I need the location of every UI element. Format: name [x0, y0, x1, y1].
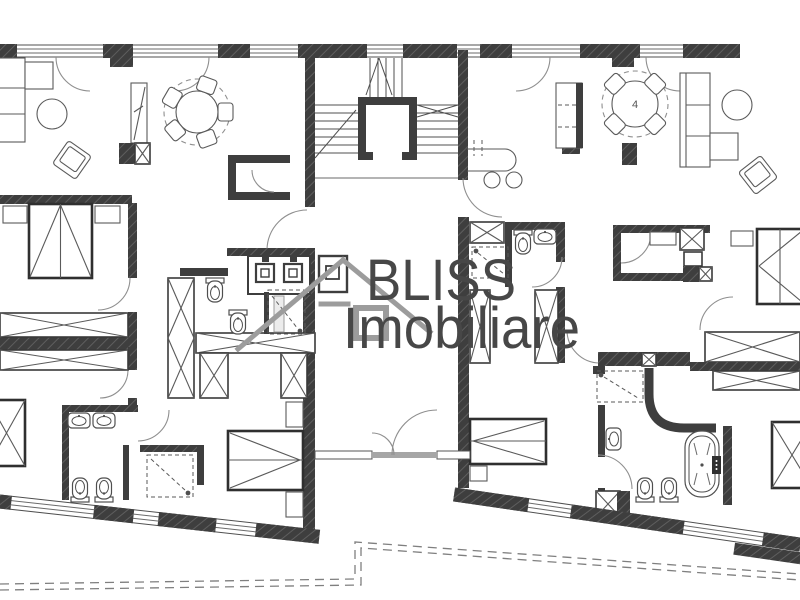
bottom-wall-left — [0, 495, 320, 544]
sink-icon — [534, 229, 556, 244]
sofa — [0, 58, 53, 142]
bidet-icon — [660, 478, 678, 502]
double-bed-1 — [3, 204, 120, 278]
sink-icon — [606, 428, 621, 450]
terrace-dashed-outline — [0, 542, 800, 590]
double-bed-6 — [772, 422, 800, 488]
balcony-door-arcs — [56, 57, 680, 91]
double-bed-3 — [228, 402, 303, 517]
double-bed-2 — [0, 400, 25, 466]
double-bed-5 — [470, 419, 546, 481]
vanity-double-basin — [248, 256, 310, 294]
sink-icon — [68, 413, 90, 428]
brand-name-line2: Imobiliare — [343, 296, 580, 361]
left-apartment — [0, 58, 315, 517]
shower-bottom-left — [147, 455, 193, 497]
dining-table-left — [161, 75, 233, 149]
bathtub-icon — [685, 431, 721, 497]
right-apartment: 4 — [467, 71, 800, 517]
bidet-icon — [95, 478, 113, 502]
storage-cabinet — [556, 83, 583, 148]
wardrobe-band-right — [690, 332, 800, 390]
stair-steps — [315, 58, 458, 158]
entrance-double-door — [315, 410, 470, 459]
right-apartment-entry-door-arc — [463, 178, 502, 217]
armchair-right — [738, 155, 777, 194]
left-apartment-entry-door-arc — [267, 210, 307, 250]
dining-table-right: 4 — [602, 71, 668, 137]
bidet-icon — [229, 310, 247, 334]
double-bed-4 — [731, 229, 800, 304]
toilet-icon — [71, 478, 89, 502]
floor-plan-page: 4 — [0, 0, 800, 600]
armchair — [53, 141, 92, 180]
corner-room — [613, 225, 712, 282]
stair-storage-room — [228, 155, 290, 200]
tv-cabinet — [119, 83, 150, 164]
toilet-icon — [514, 230, 532, 254]
coffee-table — [37, 99, 67, 129]
hall-wardrobes — [168, 278, 315, 398]
toilet-icon — [206, 278, 224, 302]
sofa-right — [680, 73, 738, 167]
floor-plan-drawing: 4 — [0, 0, 800, 600]
side-table — [722, 90, 752, 120]
sink-icon — [93, 413, 115, 428]
stool — [622, 143, 637, 165]
toilet-icon — [636, 478, 654, 502]
table-seat-count-label: 4 — [632, 99, 638, 111]
door-threshold — [372, 452, 437, 458]
